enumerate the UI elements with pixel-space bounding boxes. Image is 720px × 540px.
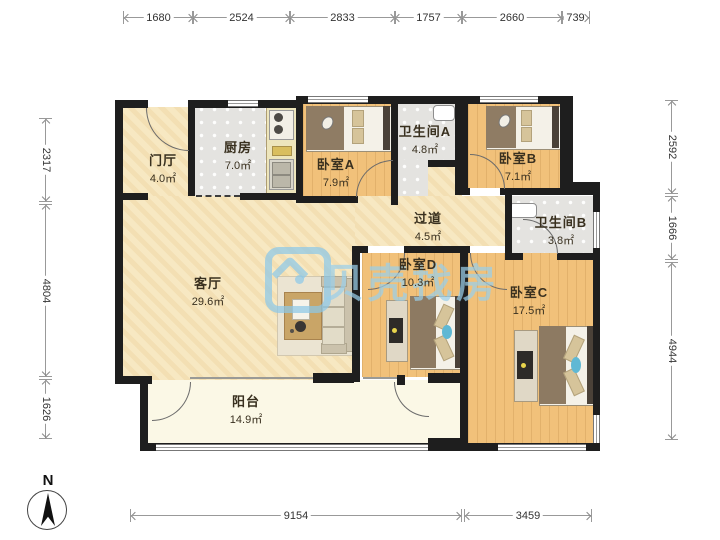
stove-burner	[274, 113, 283, 122]
dim-top-2: 2524	[192, 11, 291, 24]
sofa-cushion	[322, 327, 345, 345]
dim-left-3: 1626	[39, 379, 52, 439]
dim-label: 2833	[327, 12, 357, 24]
counter-item	[272, 146, 292, 156]
label-balcony: 阳台 14.9㎡	[230, 391, 262, 427]
dim-right-2: 1666	[665, 196, 678, 260]
room-name: 卧室A	[317, 154, 355, 173]
wall	[115, 193, 148, 200]
watermark-logo-icon	[265, 247, 331, 313]
room-area: 7.0㎡	[224, 157, 252, 173]
wall	[296, 96, 303, 200]
dim-right-3: 4944	[665, 262, 678, 440]
dim-label: 4944	[666, 336, 678, 366]
window-kitchen	[228, 100, 258, 107]
dim-label: 4804	[40, 275, 52, 305]
bed-b-pillow	[521, 110, 532, 126]
wall	[240, 193, 303, 200]
room-name: 卧室C	[510, 282, 548, 301]
label-bedroom-a: 卧室A 7.9㎡	[317, 154, 355, 190]
wall	[505, 188, 600, 195]
label-kitchen: 厨房 7.0㎡	[224, 137, 252, 173]
bed-c-cushion	[571, 357, 581, 373]
compass-north-label: N	[38, 472, 58, 489]
sink-basin	[272, 162, 291, 175]
wall	[455, 188, 470, 195]
window-bathroom-b	[593, 212, 600, 248]
label-bathroom-a: 卫生间A 4.8㎡	[399, 121, 451, 157]
sink-basin	[272, 175, 291, 188]
tv-c-dot	[521, 363, 526, 368]
bedroom-d-balcony-glass	[363, 377, 397, 379]
dim-top-5: 2660	[461, 11, 563, 24]
bathtub-a-icon	[433, 105, 455, 121]
dim-label: 1666	[666, 213, 678, 243]
room-area: 4.5㎡	[414, 228, 442, 244]
label-bedroom-c: 卧室C 17.5㎡	[510, 282, 548, 318]
room-name: 阳台	[230, 391, 262, 410]
room-name: 厨房	[224, 137, 252, 156]
label-bedroom-d: 卧室D 10.3㎡	[399, 254, 437, 290]
dim-label: 9154	[281, 510, 311, 522]
wall	[115, 100, 123, 383]
wall	[505, 188, 512, 260]
watermark-roof-icon	[272, 256, 309, 293]
wall	[296, 196, 358, 203]
kitchen-opening-dashed	[196, 195, 240, 197]
wall	[505, 253, 523, 260]
bed-a-pillow	[352, 110, 364, 127]
window-bedroom-b	[480, 96, 538, 103]
room-name: 客厅	[192, 273, 224, 292]
dim-label: 1757	[413, 12, 443, 24]
table-cup	[290, 329, 294, 333]
floorplan-canvas: 贝壳找房 门厅 4.0㎡ 厨房 7.0㎡ 卧室A 7.9㎡ 卫生间A 4.8㎡ …	[0, 0, 720, 540]
room-area: 4.8㎡	[399, 141, 451, 157]
wall	[455, 96, 468, 188]
wall	[428, 373, 462, 383]
dim-left-2: 4804	[39, 204, 52, 377]
wall	[560, 96, 573, 188]
dim-top-6: 739	[561, 11, 590, 24]
dim-label: 2317	[40, 145, 52, 175]
room-area: 29.6㎡	[192, 293, 224, 309]
dim-label: 3459	[513, 510, 543, 522]
room-name: 卧室D	[399, 254, 437, 273]
dim-label: 1680	[143, 12, 173, 24]
dim-label: 739	[563, 12, 587, 24]
window-bedroom-a	[308, 96, 368, 103]
label-living-room: 客厅 29.6㎡	[192, 273, 224, 309]
watermark-dot-icon	[295, 275, 304, 284]
wall	[313, 373, 354, 383]
dim-right-1: 2592	[665, 100, 678, 194]
living-balcony-glass	[190, 377, 313, 379]
bed-b-pillow	[521, 127, 532, 142]
room-area: 3.8㎡	[535, 232, 587, 248]
room-name: 卫生间A	[399, 121, 451, 140]
dim-top-1: 1680	[123, 11, 194, 24]
table-kettle	[295, 321, 306, 332]
bathtub-b-icon	[509, 203, 537, 218]
wall	[188, 100, 195, 196]
window-bedroom-c-bottom	[498, 444, 586, 451]
bed-d-cushion	[442, 325, 452, 339]
wall	[428, 160, 462, 167]
stove-burner	[274, 125, 283, 134]
bed-a-headboard	[383, 106, 390, 150]
dim-bottom-1: 9154	[130, 509, 462, 522]
label-entry: 门厅 4.0㎡	[149, 150, 177, 186]
bed-b-headboard	[552, 106, 559, 148]
wall	[140, 378, 148, 451]
room-name: 过道	[414, 208, 442, 227]
label-bedroom-b: 卧室B 7.1㎡	[499, 148, 537, 184]
label-bathroom-b: 卫生间B 3.8㎡	[535, 212, 587, 248]
window-bedroom-c-side	[593, 415, 600, 443]
room-area: 14.9㎡	[230, 411, 262, 427]
label-corridor: 过道 4.5㎡	[414, 208, 442, 244]
bed-a-pillow	[352, 128, 364, 144]
dim-label: 2660	[497, 12, 527, 24]
room-name: 门厅	[149, 150, 177, 169]
dim-bottom-2: 3459	[464, 509, 592, 522]
room-area: 4.0㎡	[149, 170, 177, 186]
dim-label: 2524	[226, 12, 256, 24]
dim-left-1: 2317	[39, 118, 52, 202]
room-name: 卧室B	[499, 148, 537, 167]
room-area: 7.9㎡	[317, 174, 355, 190]
dim-top-3: 2833	[289, 11, 396, 24]
room-area: 7.1㎡	[499, 168, 537, 184]
tv-d-dot	[392, 328, 397, 333]
window-balcony	[156, 444, 428, 451]
dim-label: 2592	[666, 132, 678, 162]
room-area: 10.3㎡	[399, 274, 437, 290]
wall	[557, 253, 600, 260]
bed-c-blanket	[539, 326, 566, 404]
room-name: 卫生间B	[535, 212, 587, 231]
dim-label: 1626	[40, 394, 52, 424]
room-area: 17.5㎡	[510, 302, 548, 318]
dim-top-4: 1757	[394, 11, 463, 24]
